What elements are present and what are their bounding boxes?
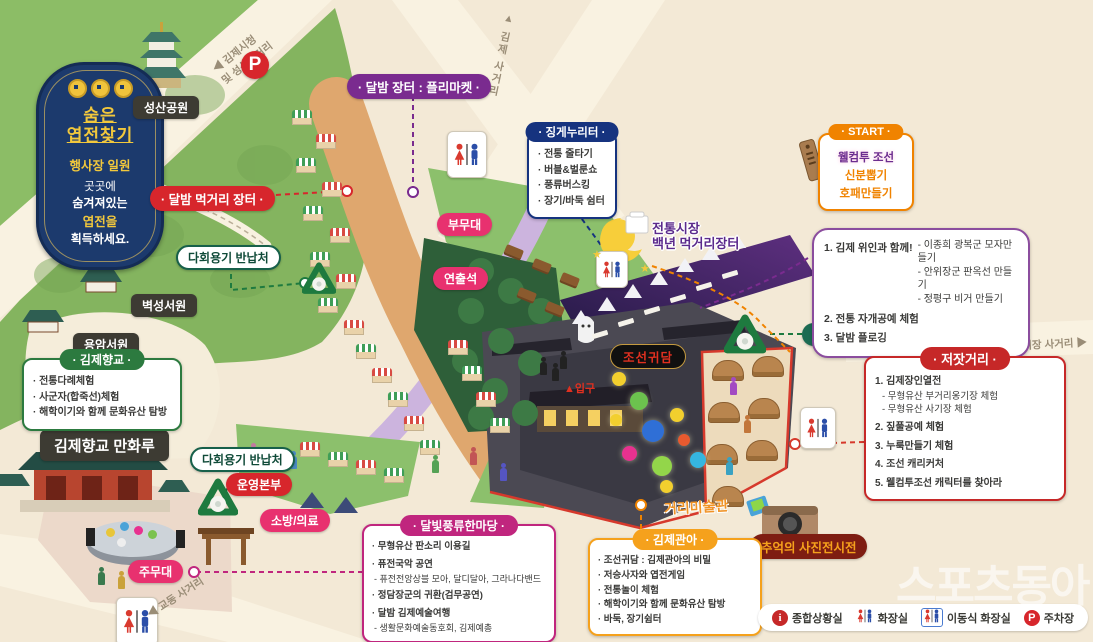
label-reuse-return-2: 다회용기 반납처	[190, 447, 295, 472]
label-reuse-return-1: 다회용기 반납처	[176, 245, 281, 270]
label-sub-stage: 부무대	[437, 213, 492, 236]
badge-text: 획득하세요.	[39, 230, 161, 247]
badge-text: 곳곳에	[39, 178, 161, 194]
box-jingge-nuriteo: · 징게누리터 · · 전통 줄타기 · 버블&벌룬쇼 · 풍류버스킹 · 장기…	[527, 131, 617, 219]
label-photo-exhibition: 추억의 사진전시전	[750, 534, 867, 559]
box-moonlight: · 달빛풍류한마당 · · 무형유산 판소리 이용길 · 퓨전국악 공연 - 퓨…	[362, 524, 556, 642]
box-title: · 징게누리터 ·	[526, 122, 619, 142]
box-title: · 저잣거리 ·	[920, 347, 1010, 370]
star-icon: ★	[592, 248, 602, 261]
legend-portable-toilet: 이동식 화장실	[921, 608, 1011, 627]
portable-toilet-icon	[923, 609, 941, 626]
badge-subtitle: 행사장 일원	[39, 155, 161, 174]
hidden-coin-event-badge: 숨은엽전찾기 행사장 일원 곳곳에 숨겨져있는 엽전을 획득하세요.	[36, 62, 164, 270]
box-title: · 김제향교 ·	[60, 349, 145, 370]
box-title: · START ·	[828, 124, 903, 140]
ghost-icon	[578, 316, 594, 343]
label-fire-medical: 소방/의료	[260, 509, 330, 532]
info-icon: i	[772, 610, 788, 626]
coin-icon	[91, 79, 110, 98]
coin-icon	[114, 79, 133, 98]
box-hyanggyo: · 김제향교 · · 전통다례체험 · 사군자(합죽선)체험 · 해학이기와 함…	[22, 358, 182, 431]
badge-text: 엽전을	[39, 211, 161, 230]
legend-toilet: 화장실	[856, 609, 908, 626]
star-icon: ★	[640, 262, 650, 275]
map-legend: i 종합상황실 화장실 이동식 화장실 P 주차장	[758, 604, 1088, 631]
camera-icon	[746, 495, 818, 538]
box-jeotgat-street: · 저잣거리 · 1. 김제장인열전 - 무형유산 부거리옹기장 체험 - 무형…	[864, 356, 1066, 501]
toilet-icon	[923, 609, 941, 623]
toilet-icon	[856, 609, 874, 626]
label-ops-hq: 운영본부	[226, 473, 292, 496]
label-street-gallery: 거리미술관	[664, 495, 729, 518]
legend-parking: P 주차장	[1024, 610, 1074, 626]
label-flea-market: · 달밤 장터 : 플리마켓 ·	[347, 74, 491, 99]
label-joseon-gwidam: 조선귀담	[610, 344, 686, 369]
legend-info: i 종합상황실	[772, 610, 843, 626]
parking-icon: P	[1024, 610, 1040, 626]
box-title: · 김제관아 ·	[633, 529, 718, 550]
label-main-stage: 주무대	[128, 560, 183, 583]
label-byeokseong-seowon: 벽성서원	[131, 294, 197, 317]
parking-icon: P	[241, 51, 269, 79]
box-start: · START · 웰컴투 조선 신분뽑기 호패만들기	[818, 133, 914, 211]
coin-icon	[68, 79, 87, 98]
badge-text: 숨겨져있는	[39, 194, 161, 211]
manhwaru-building-icon	[0, 452, 190, 512]
toilet-icon	[856, 609, 874, 623]
box-gwana: · 김제관아 · · 조선귀담 : 김제관아의 비밀 · 저승사자와 엽전게임 …	[588, 538, 762, 636]
label-seongsan-park: 성산공원	[133, 96, 199, 119]
box-program: 1. 김제 위인과 함께! - 이종희 광복군 모자만들기 - 안위장군 판옥선…	[812, 228, 1030, 358]
label-night-food-market: · 달밤 먹거리 장터 ·	[150, 186, 275, 211]
label-entrance: ▲입구	[564, 380, 595, 396]
box-title: · 달빛풍류한마당 ·	[400, 515, 518, 536]
label-hyanggyo-manhwaru: 김제향교 만화루	[40, 430, 169, 461]
label-producer-seat: 연출석	[433, 267, 488, 290]
label-night-market: 전통시장백년 먹거리장터	[652, 222, 739, 252]
festival-map: 숨은엽전찾기 행사장 일원 곳곳에 숨겨져있는 엽전을 획득하세요. ◀ 김제시…	[0, 0, 1093, 642]
